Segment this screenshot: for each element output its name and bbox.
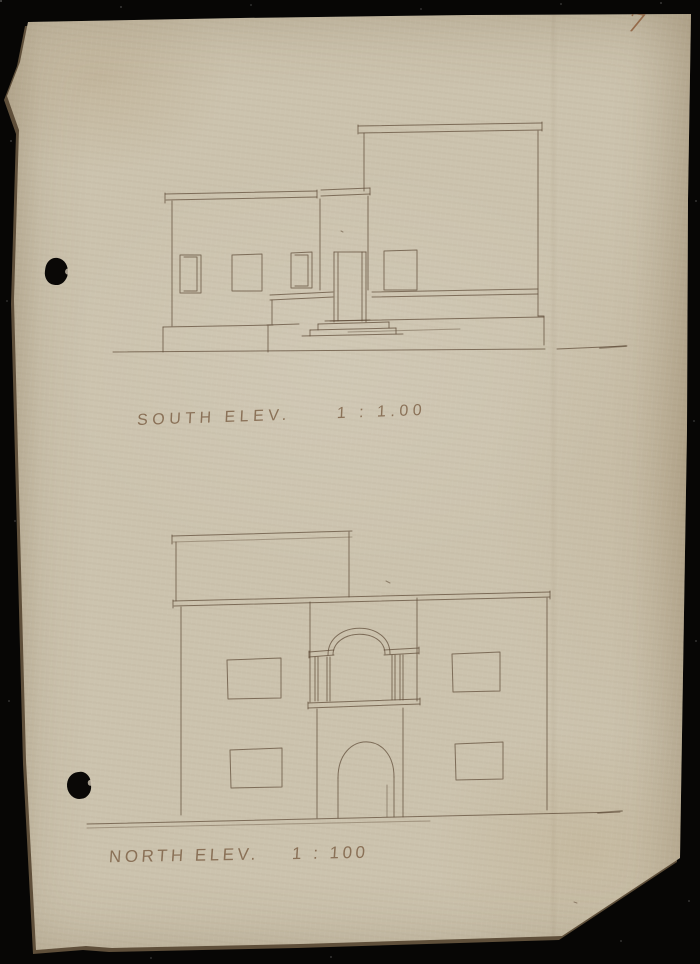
stray-pencil-marks xyxy=(341,231,577,903)
north-elevation-drawing xyxy=(87,531,622,828)
north-elevation-scale: 1 : 100 xyxy=(291,843,369,864)
scanned-page: SOUTH ELEV. 1 : 1.00 NORTH ELEV. 1 : 100… xyxy=(0,0,700,964)
elevation-drawings xyxy=(0,0,700,964)
south-elevation-scale: 1 : 1.00 xyxy=(336,402,426,423)
north-elevation-title: NORTH ELEV. xyxy=(108,845,259,868)
paper-sheet: SOUTH ELEV. 1 : 1.00 NORTH ELEV. 1 : 100… xyxy=(0,0,700,964)
south-elevation-drawing xyxy=(113,122,627,352)
